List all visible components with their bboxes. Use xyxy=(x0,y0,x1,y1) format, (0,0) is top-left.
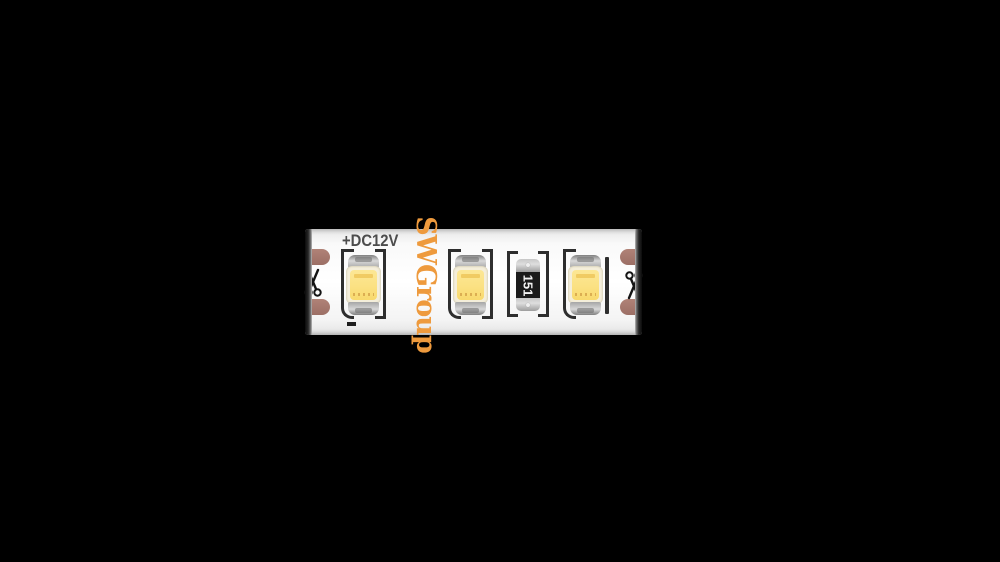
resistor-terminal-bottom xyxy=(516,298,540,311)
led-package xyxy=(568,255,603,315)
resistor-terminal-top xyxy=(516,259,540,272)
led-electrode-bottom xyxy=(570,302,601,315)
led-chip-1 xyxy=(341,249,386,319)
led-phosphor xyxy=(453,266,488,304)
led-chip-3 xyxy=(563,249,603,319)
voltage-label: +DC12V xyxy=(342,231,398,251)
resistor-value-label: 151 xyxy=(520,274,535,296)
silkscreen-outline xyxy=(605,257,609,314)
led-electrode-bottom xyxy=(455,302,486,315)
led-electrode-bottom xyxy=(348,302,379,315)
strip-cut-edge-left xyxy=(305,229,312,335)
led-phosphor xyxy=(568,266,603,304)
photo-background: +DC12V SWGroup xyxy=(0,0,1000,562)
resistor-label-area: 151 xyxy=(516,272,540,298)
led-strip: +DC12V SWGroup xyxy=(305,229,642,335)
led-package xyxy=(453,255,488,315)
resistor-footprint: 151 xyxy=(507,251,549,317)
led-phosphor xyxy=(346,266,381,304)
solder-pad-left-bottom xyxy=(311,299,330,315)
brand-label: SWGroup xyxy=(410,216,441,353)
polarity-minus-mark xyxy=(347,322,356,326)
strip-cut-edge-right xyxy=(635,229,642,335)
led-chip-2 xyxy=(448,249,493,319)
led-package xyxy=(346,255,381,315)
brand-label-wrap: SWGroup xyxy=(407,236,443,333)
resistor-body: 151 xyxy=(516,259,540,311)
solder-pad-left-top xyxy=(311,249,330,265)
